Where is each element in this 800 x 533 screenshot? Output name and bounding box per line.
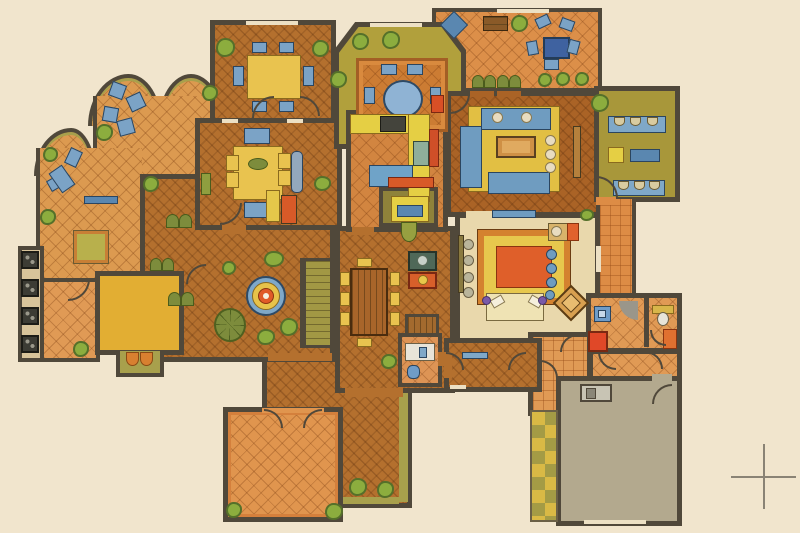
dining-lower-sideboard bbox=[201, 173, 211, 195]
dining-upper-chair-1 bbox=[252, 42, 267, 53]
dining-center-chair-1 bbox=[340, 272, 350, 286]
living-console bbox=[573, 126, 581, 178]
leaf-pair-2a bbox=[150, 258, 162, 271]
dining-upper-chair-4 bbox=[279, 101, 294, 112]
planter-square bbox=[74, 231, 108, 263]
bath-faucet bbox=[419, 347, 427, 358]
leaf-pair-5b bbox=[509, 75, 521, 88]
leaf-pair-1a bbox=[166, 214, 179, 228]
patch-hall-open-2 bbox=[345, 388, 403, 397]
bar-stool-4 bbox=[618, 181, 629, 190]
pantry-drawer bbox=[397, 205, 423, 217]
leaf-pair-5a bbox=[497, 75, 509, 88]
toilet2-bowl bbox=[657, 312, 669, 326]
window-family-right bbox=[596, 246, 601, 272]
dining-lower-chair-y4 bbox=[278, 170, 291, 186]
grill-4 bbox=[21, 335, 39, 353]
family-stool-gray-1 bbox=[463, 239, 474, 250]
kitchen-stove bbox=[380, 116, 406, 132]
dining-lower-chair-right-tall bbox=[291, 151, 303, 193]
living-sofa-bottom bbox=[488, 172, 550, 194]
porch-fan-2 bbox=[140, 352, 153, 366]
family-stool-gray-4 bbox=[463, 287, 474, 298]
dining-upper-table bbox=[247, 55, 301, 99]
kitchen-fridge bbox=[413, 141, 429, 166]
leaf-pair-4b bbox=[484, 75, 496, 88]
dining-center-chair-7 bbox=[357, 258, 372, 267]
dining-center-chair-3 bbox=[340, 312, 350, 326]
family-stool-blue-3 bbox=[546, 277, 557, 288]
utility-sink-bowl bbox=[417, 255, 428, 266]
dining-center-chair-4 bbox=[390, 272, 400, 286]
family-desk-red bbox=[567, 223, 579, 241]
living-pillow-1 bbox=[492, 112, 503, 123]
laundry-red-unit bbox=[588, 331, 608, 352]
living-ottoman-2 bbox=[545, 149, 556, 160]
dining-lower-chair-y3 bbox=[278, 153, 291, 169]
stair-rail bbox=[300, 258, 304, 348]
bar-stool-3 bbox=[647, 117, 658, 126]
family-pillow-purple-2 bbox=[538, 296, 547, 305]
patch-living-terrace-door-2 bbox=[497, 91, 521, 97]
leaf-pair-1b bbox=[179, 214, 192, 228]
patio-bench-blue bbox=[84, 196, 118, 204]
porch-fan-1 bbox=[126, 352, 139, 366]
pantry-red-counter bbox=[388, 177, 434, 188]
family-console bbox=[492, 210, 536, 218]
living-ottoman-1 bbox=[545, 135, 556, 146]
living-sofa-left bbox=[460, 126, 482, 188]
leaf-pair-3a bbox=[168, 292, 181, 306]
family-stool-gray-2 bbox=[463, 255, 474, 266]
olive-band-vert bbox=[399, 390, 408, 502]
crosshair-vertical bbox=[763, 444, 765, 509]
family-stool-blue-2 bbox=[546, 263, 557, 274]
nook-table bbox=[383, 80, 423, 118]
nook-chair-3 bbox=[381, 64, 397, 75]
grill-3 bbox=[21, 307, 39, 325]
dining-lower-fireplace-yellow bbox=[266, 190, 280, 222]
kitchen-red-cabinet bbox=[431, 95, 444, 113]
bath-toilet bbox=[407, 365, 420, 379]
leaf-single-pantry bbox=[401, 222, 417, 242]
dining-center-chair-5 bbox=[390, 292, 400, 306]
dining-center-chair-8 bbox=[357, 338, 372, 347]
garage-utility bbox=[580, 384, 612, 402]
fountain-dot bbox=[263, 293, 269, 299]
terrace-tiles-right bbox=[596, 199, 636, 300]
dining-lower-centerpiece bbox=[248, 158, 268, 170]
dining-upper-chair-2 bbox=[279, 42, 294, 53]
grill-1 bbox=[21, 251, 39, 269]
terrace-tr-table bbox=[543, 37, 570, 59]
family-desk-chair bbox=[551, 226, 562, 237]
utility-cabinet-knob bbox=[418, 275, 428, 285]
bar-counter-mid-yellow bbox=[608, 147, 624, 163]
window-dining-lower-1 bbox=[222, 119, 238, 123]
terrace-tr-slat-bench bbox=[483, 16, 508, 31]
wall-toilet-room bbox=[644, 297, 649, 347]
washer-door bbox=[598, 310, 606, 318]
patch-living-terrace-door-1 bbox=[470, 91, 494, 97]
patio-checker bbox=[530, 410, 558, 522]
dining-lower-fireplace-red bbox=[281, 195, 297, 224]
bar-stool-6 bbox=[649, 181, 660, 190]
patch-bar-tiles-door bbox=[596, 197, 616, 205]
patch-kitchen-hall-door bbox=[352, 227, 374, 235]
grill-2 bbox=[21, 279, 39, 297]
window-dining-lower-2 bbox=[287, 119, 303, 123]
family-stool-blue-1 bbox=[546, 249, 557, 260]
leaf-pair-2b bbox=[162, 258, 174, 271]
dining-lower-chair-top bbox=[244, 128, 270, 144]
terrace-tr-chair-5 bbox=[544, 59, 559, 70]
dining-upper-chair-5 bbox=[233, 66, 244, 86]
living-pillow-2 bbox=[521, 112, 532, 123]
dining-center-table bbox=[350, 268, 388, 336]
window-garage-door bbox=[584, 520, 646, 524]
patch-hall-open-1 bbox=[268, 353, 332, 361]
terrace-tr-chair-3 bbox=[526, 40, 539, 56]
kitchen-red-strip bbox=[429, 129, 439, 167]
nook-chair-4 bbox=[407, 64, 423, 75]
living-coffee-table-top bbox=[502, 141, 530, 153]
bedroom-console bbox=[462, 352, 488, 359]
nook-chair-1 bbox=[364, 87, 375, 104]
garage-utility-inner bbox=[586, 388, 596, 399]
dining-center-chair-2 bbox=[340, 292, 350, 306]
bar-counter-mid-blue bbox=[630, 149, 660, 162]
family-pillow-purple-1 bbox=[482, 296, 491, 305]
family-stool-gray-3 bbox=[463, 272, 474, 283]
window-dining-upper bbox=[246, 21, 298, 25]
floor-plan bbox=[0, 0, 800, 533]
patch-dining-hall-door bbox=[222, 225, 246, 234]
family-rug-center bbox=[496, 246, 552, 288]
stairwell bbox=[303, 258, 333, 348]
leaf-pair-4a bbox=[472, 75, 484, 88]
patch-living-family-door bbox=[466, 211, 492, 219]
patch-garage-door bbox=[652, 374, 672, 383]
window-nook bbox=[370, 23, 422, 27]
window-bedroom bbox=[450, 385, 466, 389]
bar-stool-2 bbox=[630, 117, 641, 126]
dining-center-chair-6 bbox=[390, 312, 400, 326]
room-gold bbox=[95, 271, 184, 355]
dining-upper-chair-6 bbox=[303, 66, 314, 86]
palm-plant bbox=[214, 308, 246, 342]
patch-bath-door bbox=[438, 352, 446, 366]
window-terrace-tr bbox=[497, 9, 549, 13]
dining-lower-chair-y2 bbox=[226, 172, 239, 188]
bar-stool-5 bbox=[634, 181, 645, 190]
leaf-pair-3b bbox=[181, 292, 194, 306]
living-ottoman-3 bbox=[545, 162, 556, 173]
dining-lower-chair-y1 bbox=[226, 155, 239, 171]
family-shelf bbox=[458, 235, 464, 293]
bar-stool-1 bbox=[614, 117, 625, 126]
